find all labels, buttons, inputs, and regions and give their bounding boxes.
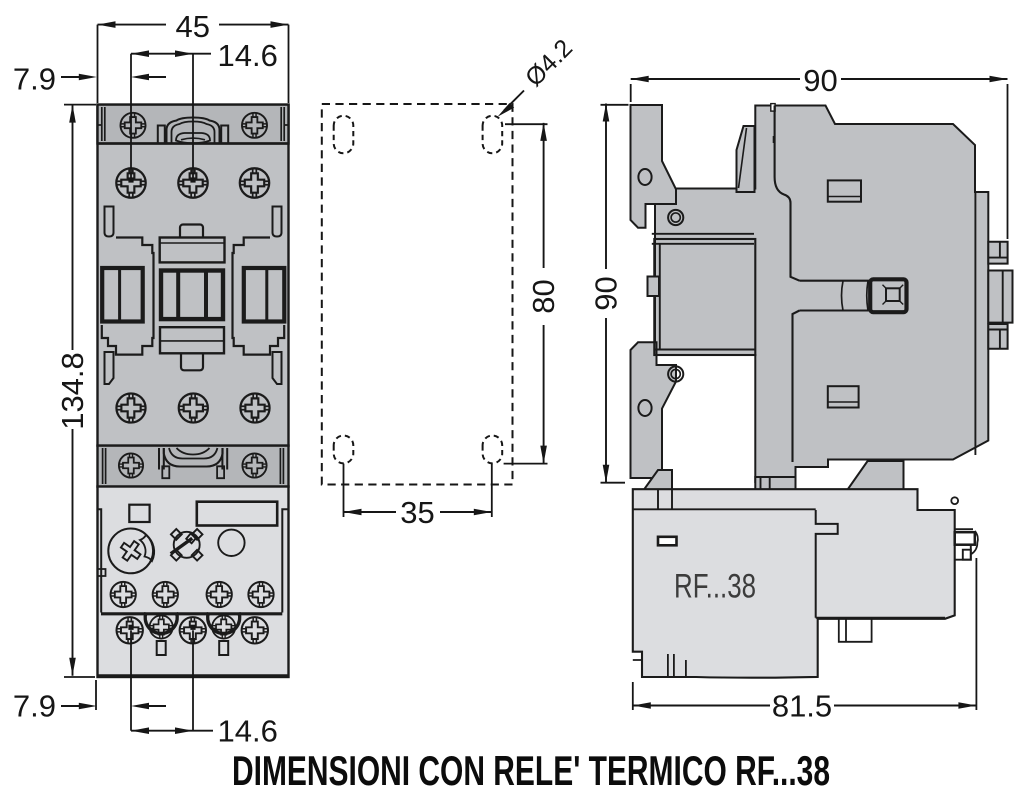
svg-text:90: 90 [589, 276, 624, 310]
svg-text:7.9: 7.9 [13, 62, 56, 97]
svg-text:80: 80 [526, 279, 561, 313]
svg-text:14.6: 14.6 [218, 714, 278, 749]
svg-text:81.5: 81.5 [772, 689, 832, 724]
svg-text:35: 35 [400, 495, 434, 530]
svg-text:134.8: 134.8 [55, 352, 90, 430]
svg-text:RF...38: RF...38 [674, 568, 756, 606]
svg-text:90: 90 [803, 63, 837, 98]
svg-text:14.6: 14.6 [218, 38, 278, 73]
svg-text:DIMENSIONI CON RELE' TERMICO R: DIMENSIONI CON RELE' TERMICO RF...38 [232, 747, 830, 794]
svg-text:45: 45 [176, 9, 210, 44]
svg-text:7.9: 7.9 [13, 689, 56, 724]
